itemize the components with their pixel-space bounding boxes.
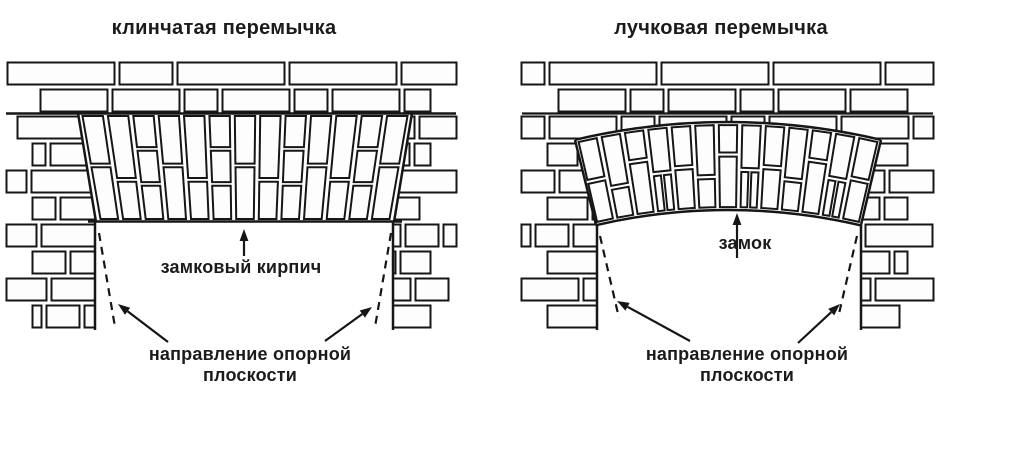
segmental-arch-drawing	[522, 63, 934, 331]
keystone-label: замок	[719, 233, 772, 254]
bearing-plane-label-right: направление опорной плоскости	[622, 344, 872, 386]
wedge-lintel-drawing	[6, 63, 457, 331]
keystone-brick-label: замковый кирпич	[161, 257, 322, 278]
segmental-lintel-title: лучковая перемычка	[614, 17, 828, 40]
wedge-lintel-title: клинчатая перемычка	[112, 17, 337, 40]
masonry-lintel-figure: клинчатая перемычка лучковая перемычка з…	[0, 0, 1023, 466]
bearing-plane-label-left: направление опорной плоскости	[125, 344, 375, 386]
brick-diagram-canvas	[0, 0, 1023, 466]
